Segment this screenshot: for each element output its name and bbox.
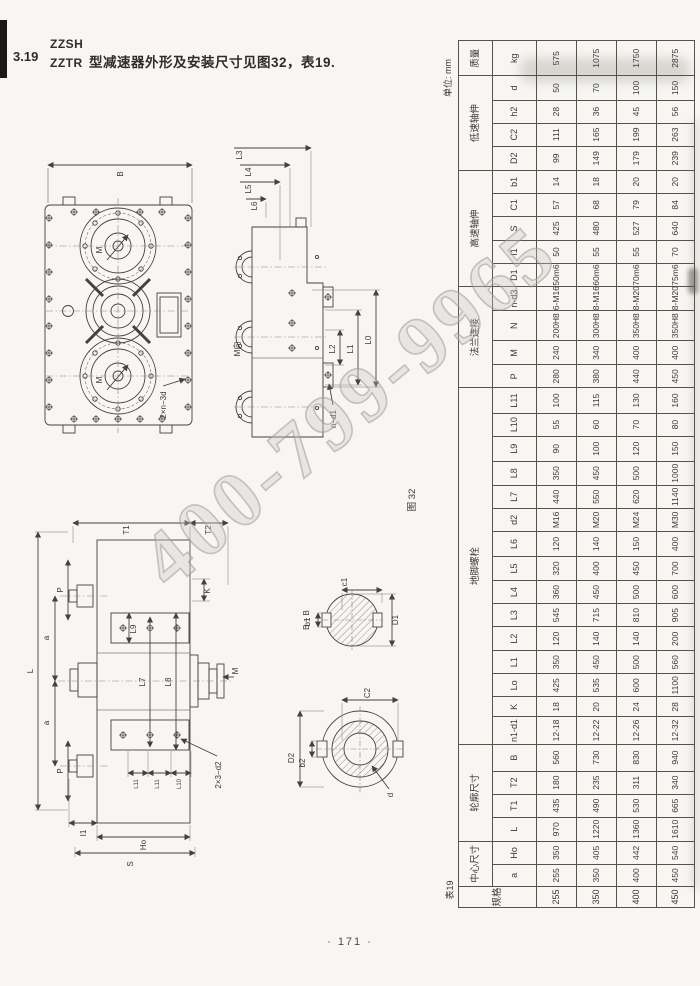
cell-L-255: 970 <box>537 817 577 841</box>
cell-K-350: 20 <box>577 697 617 717</box>
scan-artifact-bar <box>0 20 7 78</box>
cell-L6-450: 400 <box>657 531 695 556</box>
col-header-C2: C2 <box>493 123 537 146</box>
cell-L8-450: 1000 <box>657 461 695 485</box>
dim-label-l: L <box>26 668 35 673</box>
cell-C2-255: 111 <box>537 123 577 146</box>
model-name-zzsh: ZZSH <box>50 37 83 51</box>
col-header-a: a <box>493 864 537 886</box>
cell-L9-400: 120 <box>617 436 657 461</box>
col-header-Lo: Lo <box>493 674 537 697</box>
cell-L10-450: 80 <box>657 413 695 436</box>
figure-label: 图 32 <box>405 483 417 517</box>
col-header-L3: L3 <box>493 604 537 627</box>
cell-L3-450: 905 <box>657 604 695 627</box>
cell-K-450: 28 <box>657 697 695 717</box>
cell-a-400: 400 <box>617 864 657 886</box>
dim-label-b1: b1 <box>303 617 312 626</box>
cell-Ho-450: 540 <box>657 841 695 864</box>
cell-L-400: 1360 <box>617 817 657 841</box>
col-header-L1: L1 <box>493 651 537 674</box>
dim-label-b2: b2 <box>298 758 307 767</box>
dim-label-p-top: P <box>56 587 65 592</box>
data-row-255: 25525535097043518056012-1818425350120545… <box>537 41 577 908</box>
cell-L5-350: 400 <box>577 557 617 581</box>
cell-S-350: 480 <box>577 216 617 240</box>
dim-label-l1: L1 <box>346 344 355 353</box>
col-header-n1-d1: n1-d1 <box>493 717 537 744</box>
cell-D2-350: 149 <box>577 146 617 170</box>
cell-B-350: 730 <box>577 744 617 771</box>
cell-Ho-400: 442 <box>617 841 657 864</box>
cell-N-350: 300H8 <box>577 311 617 341</box>
dim-label-l9: L9 <box>129 624 138 633</box>
cell-Ho-350: 405 <box>577 841 617 864</box>
cell-M-350: 340 <box>577 341 617 365</box>
cell-T1-400: 530 <box>617 794 657 817</box>
cell-L10-350: 60 <box>577 413 617 436</box>
cell-K-255: 18 <box>537 697 577 717</box>
cell-h2-400: 45 <box>617 100 657 123</box>
dim-label-l8: L8 <box>164 677 173 686</box>
cell-C2-450: 263 <box>657 123 695 146</box>
cell-T2-350: 235 <box>577 771 617 794</box>
cell-D2-400: 179 <box>617 146 657 170</box>
cell-S-400: 527 <box>617 216 657 240</box>
dim-label-l7: L7 <box>138 677 147 686</box>
cell-P-255: 280 <box>537 365 577 388</box>
cell-M-255: 240 <box>537 341 577 365</box>
scanned-manual-page: { "page": { "section_number": "3.19", "m… <box>0 0 700 986</box>
cell-b1-400: 20 <box>617 170 657 193</box>
col-header-D2: D2 <box>493 146 537 170</box>
dim-label-c2: C2 <box>363 687 372 698</box>
cell-D2-450: 239 <box>657 146 695 170</box>
cell-S-450: 640 <box>657 216 695 240</box>
dim-label-l3: L3 <box>235 150 244 159</box>
cell-L11-400: 130 <box>617 388 657 413</box>
cell-T1-255: 435 <box>537 794 577 817</box>
data-row-350: 350350405122049023573012-222053545014071… <box>577 41 617 908</box>
side-view-drawing: L3 L4 L5 L6 L2 L1 L0 M向 n−d1 <box>232 128 432 448</box>
cell-N-255: 200H8 <box>537 311 577 341</box>
cell-d-350: 70 <box>577 76 617 100</box>
cell-T2-450: 340 <box>657 771 695 794</box>
cell-P-400: 440 <box>617 365 657 388</box>
cell-kg-350: 1075 <box>577 41 617 77</box>
cell-C1-450: 84 <box>657 193 695 216</box>
cell-L1-400: 500 <box>617 651 657 674</box>
cell-n-d3-350: 8-M16 <box>577 287 617 311</box>
cell-n1-d1-450: 12-32 <box>657 717 695 744</box>
cell-D1-450: 75m6 <box>657 264 695 287</box>
dim-label-l11a: L11 <box>134 779 140 789</box>
cell-T2-400: 311 <box>617 771 657 794</box>
cell-P-350: 380 <box>577 365 617 388</box>
col-header-D1: D1 <box>493 264 537 287</box>
cell-L1-350: 450 <box>577 651 617 674</box>
cell-D1-350: 60m6 <box>577 264 617 287</box>
col-header-L6: L6 <box>493 531 537 556</box>
section-bb-drawing: B − B c1 b1 D1 <box>296 568 406 658</box>
cell-L7-400: 620 <box>617 485 657 508</box>
cell-kg-255: 575 <box>537 41 577 77</box>
cell-I1-400: 55 <box>617 240 657 263</box>
cell-L7-255: 440 <box>537 485 577 508</box>
col-header-L2: L2 <box>493 627 537 651</box>
cell-L8-350: 450 <box>577 461 617 485</box>
cell-M-450: 400 <box>657 341 695 365</box>
dim-label-l10: L10 <box>177 778 183 789</box>
dim-label-ho: Ho <box>139 839 148 850</box>
col-header-L5: L5 <box>493 557 537 581</box>
front-view-outline <box>45 165 192 433</box>
col-header-h2: h2 <box>493 100 537 123</box>
cell-N-400: 350H8 <box>617 311 657 341</box>
dim-label-s: S <box>126 861 135 866</box>
cell-d-400: 100 <box>617 76 657 100</box>
cell-I1-450: 70 <box>657 240 695 263</box>
col-header-M: M <box>493 341 537 365</box>
dim-label-d2: D2 <box>287 752 296 763</box>
data-row-400: 400400442136053031183012-262460050014081… <box>617 41 657 908</box>
cell-b1-450: 20 <box>657 170 695 193</box>
cell-Lo-350: 535 <box>577 674 617 697</box>
view-m-label: M向 <box>232 342 242 357</box>
cell-L6-400: 150 <box>617 531 657 556</box>
casing-bolts <box>45 208 192 423</box>
cell-L9-350: 100 <box>577 436 617 461</box>
cell-b1-350: 18 <box>577 170 617 193</box>
view-arrow-m: M <box>231 667 240 674</box>
centerlines <box>234 267 327 407</box>
cell-L9-450: 150 <box>657 436 695 461</box>
data-row-450: 450450540161066534094012-322811005602009… <box>657 41 695 908</box>
centerlines <box>316 706 404 794</box>
dim-label-t2: T2 <box>204 525 213 535</box>
front-view-drawing: B M M 2×n−3d <box>12 128 212 448</box>
cell-d-450: 150 <box>657 76 695 100</box>
cell-n1-d1-255: 12-18 <box>537 717 577 744</box>
cell-C1-255: 57 <box>537 193 577 216</box>
cell-a-255: 255 <box>537 864 577 886</box>
col-header-L10: L10 <box>493 413 537 436</box>
extension-lines <box>35 526 228 857</box>
cell-L7-450: 1140 <box>657 485 695 508</box>
dim-label-l6: L6 <box>250 201 259 210</box>
cell-L4-400: 500 <box>617 581 657 604</box>
cell-L2-400: 140 <box>617 627 657 651</box>
header-row-groups: 规格中心尺寸轮廓尺寸地脚螺栓法兰连接高速轴伸低速轴伸质量 <box>459 41 493 908</box>
cell-T1-350: 490 <box>577 794 617 817</box>
cell-S-255: 425 <box>537 216 577 240</box>
plan-outline <box>38 523 234 853</box>
cell-n1-d1-350: 12-22 <box>577 717 617 744</box>
col-group-6: 低速轴伸 <box>459 76 493 170</box>
col-header-C1: C1 <box>493 193 537 216</box>
cell-N-450: 350H8 <box>657 311 695 341</box>
cell-C2-350: 165 <box>577 123 617 146</box>
cell-h2-450: 56 <box>657 100 695 123</box>
cell-L4-255: 360 <box>537 581 577 604</box>
cell-C1-400: 79 <box>617 193 657 216</box>
col-header-d: d <box>493 76 537 100</box>
dim-label-k: K <box>203 588 212 594</box>
bolt-note-label: 2×n−3d <box>159 391 168 418</box>
dim-label-l5: L5 <box>244 184 253 193</box>
table-label: 表19 <box>443 875 455 905</box>
col-group-7: 质量 <box>459 41 493 77</box>
unit-note: 单位: mm <box>440 48 454 108</box>
cell-L10-255: 55 <box>537 413 577 436</box>
cell-T2-255: 180 <box>537 771 577 794</box>
cell-L1-255: 350 <box>537 651 577 674</box>
col-header-L8: L8 <box>493 461 537 485</box>
dim-label-d1: D1 <box>391 614 400 625</box>
cell-L6-255: 120 <box>537 531 577 556</box>
section-number: 3.19 <box>13 49 38 64</box>
col-header-n-d3: n-d3 <box>493 287 537 311</box>
cell-B-450: 940 <box>657 744 695 771</box>
cell-L5-450: 700 <box>657 557 695 581</box>
cell-T1-450: 665 <box>657 794 695 817</box>
spec-table-wrapper: 规格中心尺寸轮廓尺寸地脚螺栓法兰连接高速轴伸低速轴伸质量aHoLT1T2Bn1-… <box>458 40 694 908</box>
cell-L11-450: 160 <box>657 388 695 413</box>
cell-d2-400: M24 <box>617 508 657 531</box>
cell-L2-255: 120 <box>537 627 577 651</box>
col-group-5: 高速轴伸 <box>459 170 493 286</box>
cell-D1-255: 50m6 <box>537 264 577 287</box>
col-header-B: B <box>493 744 537 771</box>
col-group-4: 法兰连接 <box>459 287 493 388</box>
cell-Lo-255: 425 <box>537 674 577 697</box>
cell-h2-350: 36 <box>577 100 617 123</box>
cell-L3-400: 810 <box>617 604 657 627</box>
cell-L-450: 1610 <box>657 817 695 841</box>
col-header-Ho: Ho <box>493 841 537 864</box>
cell-Ho-255: 350 <box>537 841 577 864</box>
col-header-S: S <box>493 216 537 240</box>
cell-Lo-400: 600 <box>617 674 657 697</box>
cell-I1-350: 55 <box>577 240 617 263</box>
col-header-T2: T2 <box>493 771 537 794</box>
dim-label-l11b: L11 <box>155 779 161 789</box>
dim-label-b: B <box>116 171 125 176</box>
cell-d2-350: M20 <box>577 508 617 531</box>
cell-K-400: 24 <box>617 697 657 717</box>
header-row-subs: aHoLT1T2Bn1-d1KLoL1L2L3L4L5L6d2L7L8L9L10… <box>493 41 537 908</box>
view-arrow-m-top: M <box>95 246 104 253</box>
cell-B-400: 830 <box>617 744 657 771</box>
col-header-N: N <box>493 311 537 341</box>
col-header-L: L <box>493 817 537 841</box>
dim-label-i1: I1 <box>79 829 88 836</box>
dim-label-t1: T1 <box>122 525 131 535</box>
dim-label-l0: L0 <box>364 335 373 344</box>
section-outline <box>318 590 392 646</box>
cell-I1-255: 50 <box>537 240 577 263</box>
spec-table: 规格中心尺寸轮廓尺寸地脚螺栓法兰连接高速轴伸低速轴伸质量aHoLT1T2Bn1-… <box>458 40 695 908</box>
model-name-zztr: ZZTR <box>50 56 83 70</box>
col-group-1: 中心尺寸 <box>459 841 493 886</box>
cell-L9-255: 90 <box>537 436 577 461</box>
col-header-P: P <box>493 365 537 388</box>
cell-L7-350: 550 <box>577 485 617 508</box>
cell-L5-255: 320 <box>537 557 577 581</box>
shaft-end-outline <box>300 700 403 789</box>
cell-n-d3-400: 8-M20 <box>617 287 657 311</box>
cell-L8-400: 500 <box>617 461 657 485</box>
dim-label-c1: c1 <box>340 577 349 586</box>
cell-L2-450: 200 <box>657 627 695 651</box>
cell-b1-255: 14 <box>537 170 577 193</box>
col-group-3: 地脚螺栓 <box>459 388 493 744</box>
cell-L4-450: 600 <box>657 581 695 604</box>
side-view-outline <box>234 148 376 437</box>
bolt-note-label: n−d1 <box>329 409 338 428</box>
cell-n-d3-255: 6-M16 <box>537 287 577 311</box>
col-group-2: 轮廓尺寸 <box>459 744 493 841</box>
row-spec: 400 <box>617 886 657 907</box>
cell-L11-350: 115 <box>577 388 617 413</box>
flange-bolts <box>288 289 332 379</box>
col-header-T1: T1 <box>493 794 537 817</box>
cell-L-350: 1220 <box>577 817 617 841</box>
dim-label-l4: L4 <box>244 167 253 176</box>
col-header-d2: d2 <box>493 508 537 531</box>
cell-C1-350: 68 <box>577 193 617 216</box>
dim-label-p-bottom: P <box>56 768 65 773</box>
cell-a-450: 450 <box>657 864 695 886</box>
dim-label-a-bottom: a <box>42 720 51 725</box>
cell-D2-255: 99 <box>537 146 577 170</box>
cell-M-400: 400 <box>617 341 657 365</box>
cell-L3-255: 545 <box>537 604 577 627</box>
cell-n1-d1-400: 12-26 <box>617 717 657 744</box>
cell-L1-450: 560 <box>657 651 695 674</box>
col-header-b1: b1 <box>493 170 537 193</box>
cell-L4-350: 450 <box>577 581 617 604</box>
cell-d2-255: M16 <box>537 508 577 531</box>
cell-B-255: 560 <box>537 744 577 771</box>
cell-C2-400: 199 <box>617 123 657 146</box>
cell-L10-400: 70 <box>617 413 657 436</box>
row-spec: 255 <box>537 886 577 907</box>
cell-d-255: 50 <box>537 76 577 100</box>
cell-P-450: 450 <box>657 365 695 388</box>
cell-kg-450: 2875 <box>657 41 695 77</box>
col-header-I1: I1 <box>493 240 537 263</box>
cell-D1-400: 70m6 <box>617 264 657 287</box>
dim-label-l2: L2 <box>328 344 337 353</box>
cell-L6-350: 140 <box>577 531 617 556</box>
cell-kg-400: 1750 <box>617 41 657 77</box>
plan-view-drawing: T1 T2 K P a L a P L9 L7 L8 L11 L11 L10 2… <box>28 485 243 900</box>
cell-L2-350: 140 <box>577 627 617 651</box>
cell-h2-255: 28 <box>537 100 577 123</box>
col-header-L9: L9 <box>493 436 537 461</box>
bolt-note-label: 2×3−d2 <box>214 761 223 789</box>
row-spec: 450 <box>657 886 695 907</box>
cell-L11-255: 100 <box>537 388 577 413</box>
cell-a-350: 350 <box>577 864 617 886</box>
cell-L5-400: 450 <box>617 557 657 581</box>
row-spec: 350 <box>577 886 617 907</box>
cell-n-d3-450: 8-M20 <box>657 287 695 311</box>
col-header-L7: L7 <box>493 485 537 508</box>
cell-L8-255: 350 <box>537 461 577 485</box>
view-arrow-m-bottom: M <box>95 376 104 383</box>
col-group-0: 规格 <box>459 886 537 907</box>
col-header-L11: L11 <box>493 388 537 413</box>
cell-L3-350: 715 <box>577 604 617 627</box>
shaft-end-drawing: C2 b2 D2 d <box>288 682 412 806</box>
col-header-L4: L4 <box>493 581 537 604</box>
cell-d2-450: M30 <box>657 508 695 531</box>
col-header-kg: kg <box>493 41 537 77</box>
page-title: 型减速器外形及安装尺寸见图32，表19. <box>89 51 335 71</box>
dim-label-d: d <box>386 793 395 797</box>
dim-label-a-top: a <box>42 635 51 640</box>
col-header-K: K <box>493 697 537 717</box>
cell-Lo-450: 1100 <box>657 674 695 697</box>
page-number: · 171 · <box>0 936 700 948</box>
